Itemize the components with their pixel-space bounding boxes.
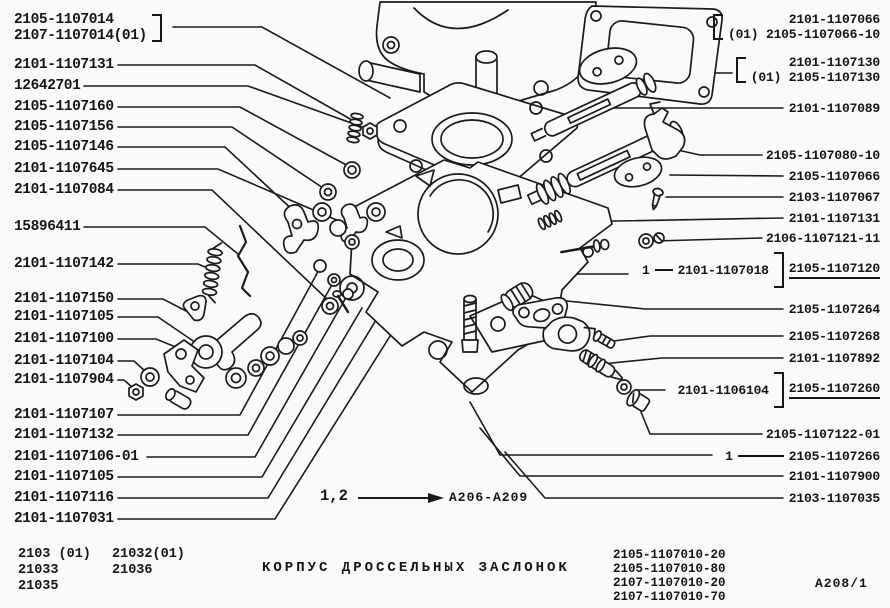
bracket [736,57,746,83]
part-number: 2103-1107035 [789,491,880,506]
part-number: 2101-1107105 [14,469,114,485]
part-number: (01) 2105-1107066-10 [728,27,880,42]
part-number: 2101-1107892 [789,351,880,366]
part-number: 2101-1107105 [14,309,114,325]
callout-1107266: 1 2105-1107266 [725,448,880,464]
part-label-group: 2101-1107066 (01) 2105-1107066-10 [713,12,880,42]
washer-and-screw [639,233,664,248]
linkage-parts [129,113,377,411]
part-number: 2101-1107904 [14,372,114,388]
exploded-view-diagram [0,0,890,608]
footnote-marker: 1 [642,263,650,278]
leader-dash [655,269,673,271]
drawing-title: КОРПУС ДРОССЕЛЬНЫХ ЗАСЛОНОК [262,560,570,576]
part-number: 2105-1107160 [14,99,114,115]
assembly-group-number: 2105-1107260 [789,381,880,399]
part-number: 2101-1107031 [14,511,114,527]
part-number: 2105-1107268 [789,329,880,344]
leader-dash [738,455,784,457]
part-number: 2107-1107014(01) [14,28,147,44]
part-number: 2105-1107122-01 [766,427,880,442]
group-lines: 2101-1107130 (01) 2105-1107130 [751,55,880,85]
part-number: 2101-1106104 [678,383,769,398]
model-list-left-col2: 21032(01) 21036 [112,547,185,579]
throttle-body [340,160,612,394]
group-lines: 2105-1107014 2107-1107014(01) [14,12,147,44]
footnote-reference: А206-А209 [449,490,528,505]
carburetor-body-upper [359,2,722,108]
part-number: 2101-1107131 [789,211,880,226]
part-number: 2101-1107100 [14,331,114,347]
bracket [774,372,784,408]
part-number: 2101-1107645 [14,161,114,177]
part-number: 2106-1107121-11 [766,231,880,246]
part-number: 2105-1107156 [14,119,114,135]
part-number: 2101-1107131 [14,57,114,73]
footnote-arrow-icon [358,493,444,503]
model-list-left-col1: 2103 (01) 21033 21035 [18,547,91,595]
bracket [152,14,162,42]
needle-valve [577,347,625,384]
bracket [713,14,723,40]
part-number: 2101-1107150 [14,291,114,307]
part-number: 2101-1107104 [14,353,114,369]
group-lines: 2101-1107066 (01) 2105-1107066-10 [728,12,880,42]
callout-1106104: 2101-1106104 2105-1107260 [678,373,880,407]
part-number: 2101-1107018 [678,263,769,278]
part-number: 2101-1107089 [789,101,880,116]
part-number: 2101-1107066 [728,12,880,27]
part-number: (01) 2105-1107130 [751,70,880,85]
sheet-code: А208/1 [815,576,868,591]
sealing-washer [617,380,631,394]
part-number: 2105-1107080-10 [766,148,880,163]
part-number: 2101-1107116 [14,490,114,506]
part-number: 2101-1107084 [14,182,114,198]
part-number: 2101-1107142 [14,256,114,272]
part-number: 2105-1107146 [14,139,114,155]
valve-screw [649,187,664,210]
part-number: 15896411 [14,219,80,235]
housing-screw [592,330,617,351]
part-number: 2105-1107066 [789,169,880,184]
part-number: 2103-1107067 [789,190,880,205]
part-number: 2101-1107130 [751,55,880,70]
part-number: 2101-1107106-01 [14,449,139,465]
bracket [774,252,784,288]
assembly-group-number: 2105-1107120 [789,261,880,279]
part-number: 2101-1107900 [789,469,880,484]
parts-diagram-page: 2105-1107014 2107-1107014(01) 2101-11071… [0,0,890,608]
model-list-right: 2105-1107010-20 2105-1107010-80 2107-110… [613,548,726,604]
part-number: 2105-1107264 [789,302,880,317]
part-number: 12642701 [14,78,80,94]
part-number: 2101-1107107 [14,407,114,423]
footnote-markers: 1,2 [320,487,348,505]
footnote-marker: 1 [725,449,733,464]
part-number: 2101-1107132 [14,427,114,443]
part-label-group: 2105-1107014 2107-1107014(01) [14,12,162,44]
part-label-group: 2101-1107130 (01) 2105-1107130 [736,55,880,85]
part-number: 2105-1107014 [14,12,147,28]
callout-1107018: 1 2101-1107018 2105-1107120 [642,253,880,287]
part-number: 2105-1107266 [789,449,880,464]
